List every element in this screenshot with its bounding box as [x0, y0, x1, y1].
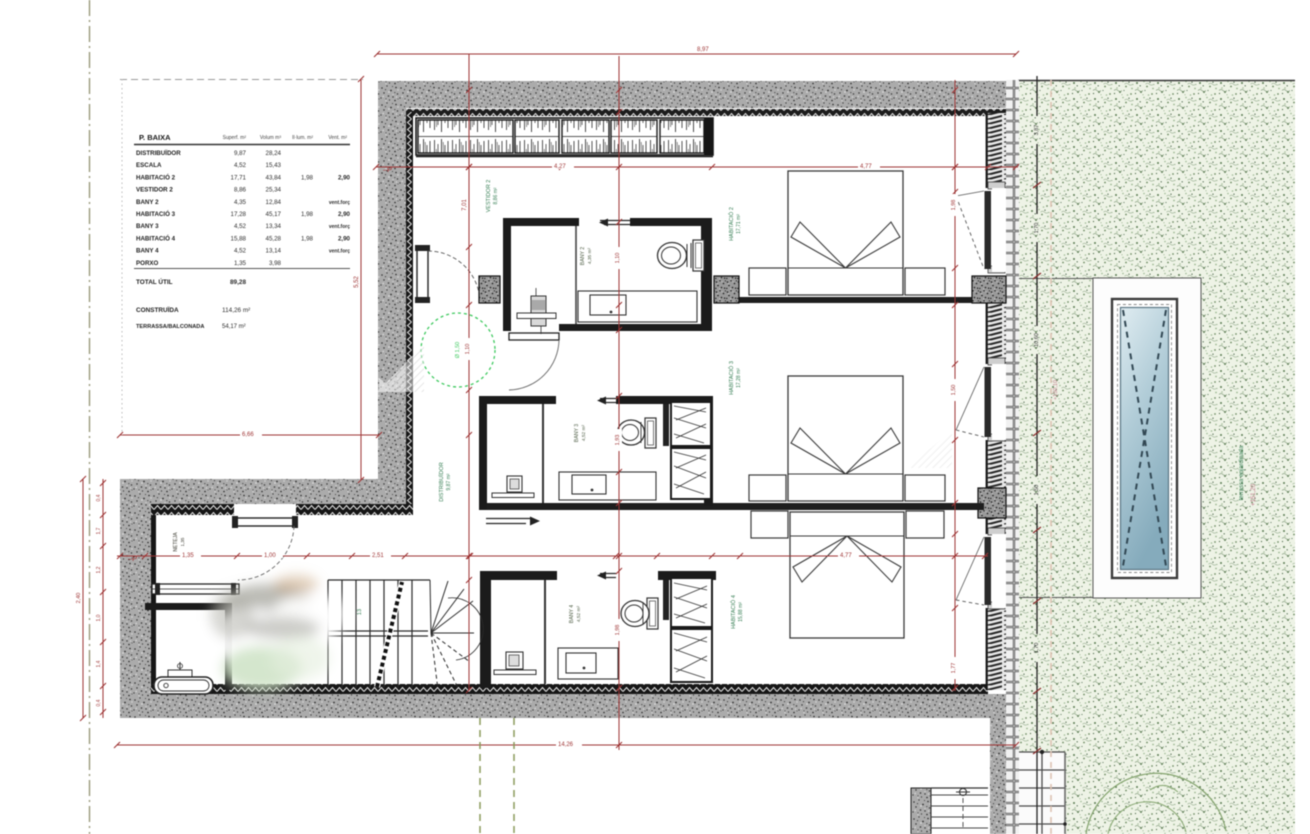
svg-text:9,87: 9,87	[234, 150, 247, 157]
svg-text:15,88: 15,88	[231, 235, 247, 242]
svg-text:4,77: 4,77	[860, 164, 872, 170]
svg-text:17,71 m²: 17,71 m²	[736, 214, 742, 234]
svg-text:1,98: 1,98	[301, 174, 314, 181]
svg-text:–P: –P	[128, 554, 137, 563]
svg-text:1,77: 1,77	[951, 663, 957, 674]
svg-text:1,50: 1,50	[951, 385, 957, 396]
svg-text:BANY 4: BANY 4	[136, 248, 159, 255]
svg-text:2,51: 2,51	[372, 553, 384, 559]
svg-text:CONSTRUÏDA: CONSTRUÏDA	[136, 306, 179, 314]
svg-text:Il·lum. m²: Il·lum. m²	[292, 135, 313, 141]
svg-text:4,52: 4,52	[234, 223, 247, 230]
svg-text:HABITACIÓ 3: HABITACIÓ 3	[136, 210, 176, 218]
svg-text:1,2: 1,2	[96, 566, 102, 573]
svg-text:1,00: 1,00	[264, 553, 276, 559]
svg-text:1,50: 1,50	[1034, 485, 1040, 496]
svg-text:13,34: 13,34	[266, 223, 282, 230]
svg-text:TOTAL ÚTIL: TOTAL ÚTIL	[136, 277, 173, 286]
svg-text:DISTRIBUÏDOR: DISTRIBUÏDOR	[136, 150, 181, 157]
svg-text:4,52: 4,52	[234, 162, 247, 169]
svg-text:BANY 2: BANY 2	[136, 199, 159, 206]
svg-text:HABITACIÓ 4: HABITACIÓ 4	[136, 234, 176, 242]
svg-text:Vent. m²: Vent. m²	[328, 135, 347, 141]
svg-text:vent.forç: vent.forç	[329, 224, 350, 230]
svg-text:5,52: 5,52	[354, 276, 360, 288]
svg-text:89,28: 89,28	[230, 279, 246, 286]
svg-text:1,35: 1,35	[182, 553, 194, 559]
svg-text:VESTIDOR 2: VESTIDOR 2	[486, 180, 492, 213]
svg-text:8,97: 8,97	[697, 47, 709, 53]
svg-text:17,28 m²: 17,28 m²	[736, 368, 742, 388]
svg-text:1,35: 1,35	[180, 537, 185, 546]
svg-text:17,71: 17,71	[231, 174, 247, 181]
svg-text:0,4: 0,4	[96, 494, 102, 501]
svg-text:4,52 m²: 4,52 m²	[576, 605, 582, 622]
svg-text:HABITACIÓ 2: HABITACIÓ 2	[728, 207, 735, 241]
svg-text:BANY 3: BANY 3	[574, 424, 580, 442]
svg-text:43,84: 43,84	[266, 174, 282, 181]
svg-text:1,10: 1,10	[615, 253, 621, 264]
svg-text:28,24: 28,24	[266, 150, 282, 157]
svg-text:13: 13	[357, 609, 363, 615]
svg-text:+150,10: +150,10	[1053, 380, 1059, 400]
svg-text:HABITACIÓ 3: HABITACIÓ 3	[728, 361, 735, 395]
svg-text:vent.forç: vent.forç	[329, 200, 350, 206]
svg-text:1,4: 1,4	[96, 660, 102, 667]
svg-text:45,28: 45,28	[266, 235, 282, 242]
svg-text:1,98: 1,98	[615, 625, 621, 636]
svg-text:9,87 m²: 9,87 m²	[446, 473, 452, 490]
svg-text:1,93: 1,93	[615, 435, 621, 446]
svg-text:1,7: 1,7	[96, 527, 102, 534]
svg-text:1,0: 1,0	[96, 614, 102, 621]
svg-text:14,26: 14,26	[558, 742, 574, 748]
svg-text:1,70: 1,70	[1034, 643, 1040, 654]
svg-text:12,84: 12,84	[266, 199, 282, 206]
svg-text:54,17 m²: 54,17 m²	[222, 324, 246, 330]
svg-text:Ø 1,50: Ø 1,50	[455, 342, 461, 359]
svg-text:15,43: 15,43	[266, 162, 282, 169]
svg-text:DISTRIBUÏDOR: DISTRIBUÏDOR	[438, 462, 445, 501]
svg-text:PORXO: PORXO	[136, 260, 159, 267]
svg-text:NETEJA: NETEJA	[173, 532, 179, 552]
svg-text:1,98: 1,98	[301, 211, 314, 218]
svg-text:ESCALA: ESCALA	[136, 162, 162, 169]
svg-text:2,40: 2,40	[76, 593, 82, 604]
svg-text:vent.forç: vent.forç	[329, 249, 350, 255]
svg-text:4,35: 4,35	[234, 199, 247, 206]
svg-text:4,52: 4,52	[234, 248, 247, 255]
svg-text:114,26 m²: 114,26 m²	[222, 307, 250, 314]
svg-text:1,98: 1,98	[301, 235, 314, 242]
svg-text:HABITACIÓ 2: HABITACIÓ 2	[136, 173, 176, 181]
svg-text:8,86: 8,86	[234, 187, 247, 194]
svg-text:Superf. m²: Superf. m²	[223, 135, 247, 141]
svg-text:terrassa enjardinada: terrassa enjardinada	[1239, 445, 1245, 500]
svg-text:VESTIDOR 2: VESTIDOR 2	[136, 187, 173, 194]
svg-text:+151,20: +151,20	[1251, 483, 1257, 506]
svg-text:1,98: 1,98	[951, 200, 957, 211]
svg-text:BANY 4: BANY 4	[569, 605, 575, 623]
svg-text:6,66: 6,66	[242, 432, 254, 438]
svg-text:–P: –P	[383, 165, 392, 174]
svg-text:7,01: 7,01	[462, 199, 468, 211]
svg-text:4,35 m²: 4,35 m²	[587, 247, 593, 264]
svg-text:HABITACIÓ 4: HABITACIÓ 4	[730, 595, 737, 629]
svg-text:10,60: 10,60	[1034, 333, 1040, 347]
svg-text:1,35: 1,35	[234, 260, 247, 267]
svg-text:Volum m³: Volum m³	[260, 135, 281, 141]
svg-text:3,87: 3,87	[1034, 125, 1040, 136]
svg-text:BANY 2: BANY 2	[580, 247, 586, 265]
svg-text:BANY 3: BANY 3	[136, 223, 159, 230]
svg-text:8,86 m²: 8,86 m²	[493, 187, 499, 204]
svg-text:1,10: 1,10	[465, 344, 471, 355]
svg-text:13,14: 13,14	[266, 248, 282, 255]
svg-text:2,90: 2,90	[338, 211, 351, 218]
svg-text:1,70: 1,70	[1034, 223, 1040, 234]
svg-text:2,90: 2,90	[338, 235, 351, 242]
svg-text:25,34: 25,34	[266, 187, 282, 194]
svg-text:P. BAIXA: P. BAIXA	[139, 133, 171, 142]
svg-text:3,98: 3,98	[269, 260, 282, 267]
svg-text:4,52 m²: 4,52 m²	[581, 424, 587, 441]
svg-text:4,77: 4,77	[840, 553, 852, 559]
svg-text:0,4: 0,4	[96, 699, 102, 706]
svg-text:15,88 m²: 15,88 m²	[738, 602, 744, 622]
svg-text:TERRASSA/BALCONADA: TERRASSA/BALCONADA	[136, 324, 204, 330]
svg-text:2,90: 2,90	[338, 174, 351, 181]
svg-text:45,17: 45,17	[266, 211, 282, 218]
svg-text:17,28: 17,28	[231, 211, 247, 218]
svg-text:4,27: 4,27	[554, 164, 566, 170]
